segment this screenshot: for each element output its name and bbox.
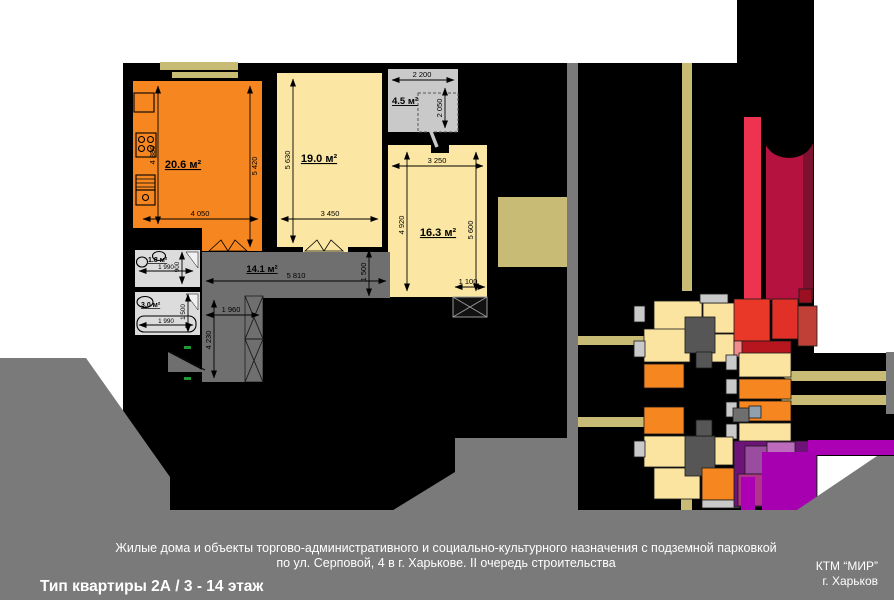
- living-area-label: 19.0 м²: [301, 153, 338, 165]
- bath-area-label: 3.0 м²: [141, 302, 161, 309]
- company-name: КТМ “МИР”: [816, 559, 878, 573]
- dim-loggia-top: 2 200: [413, 70, 432, 79]
- dim-kitchen-bottom: 4 050: [191, 209, 210, 218]
- dim-hall-right: 1 500: [359, 263, 368, 282]
- bedroom-area-label: 16.3 м²: [420, 227, 457, 239]
- wc-area-label: 1.8 м²: [148, 257, 168, 264]
- loggia-area-label: 4.5 м²: [392, 96, 418, 107]
- balcony-strip-top-1: [160, 62, 238, 70]
- bedroom-balcony: [498, 197, 567, 267]
- dim-living-left: 5 630: [283, 151, 292, 170]
- dim-hall-left: 4 230: [204, 331, 213, 350]
- road-prong-2: [781, 395, 894, 405]
- maroon-band: [803, 144, 813, 300]
- dim-bath-bottom: 1 990: [158, 318, 174, 325]
- dim-wc-right: 900: [174, 261, 181, 272]
- dim-bedroom-left: 4 920: [397, 216, 406, 235]
- dim-loggia-right: 2 050: [435, 99, 444, 118]
- apartment-type-title: Тип квартиры 2А / 3 - 14 этаж: [40, 578, 264, 595]
- project-description-line1: Жилые дома и объекты торгово-администрат…: [115, 541, 776, 555]
- kitchen-area-label: 20.6 м²: [165, 159, 202, 171]
- tower-bands: [737, 0, 814, 300]
- road-left-2: [578, 417, 650, 427]
- bedroom-door-gap: [431, 145, 449, 153]
- road-vertical-top: [682, 63, 692, 291]
- dim-bath-right: 1 500: [180, 304, 187, 320]
- green-tick-2: [184, 377, 191, 380]
- floor-plan-drawing: 4 880 5 420 4 050 5 630 3 450 2 200 2 05…: [0, 0, 894, 600]
- company-city: г. Харьков: [822, 574, 878, 588]
- dim-wc-bottom: 1 990: [158, 264, 174, 271]
- dim-hall-top: 5 810: [287, 271, 306, 280]
- green-tick-1: [184, 346, 191, 349]
- dim-living-bottom: 3 450: [321, 209, 340, 218]
- dim-bedroom-bottom: 1 100: [459, 277, 478, 286]
- bedroom-hatch-balcony: [453, 297, 487, 317]
- dim-bedroom-right: 5 600: [466, 221, 475, 240]
- stair-shaft: [245, 296, 263, 382]
- curved-band-end: [764, 116, 814, 158]
- project-description-line2: по ул. Серповой, 4 в г. Харькове. II оче…: [276, 556, 615, 570]
- dark-crimson-band: [766, 136, 803, 300]
- right-edge-strip: [886, 352, 894, 414]
- road-prong-1: [781, 371, 894, 381]
- hall-area-label: 14.1 м²: [246, 264, 277, 275]
- drawing-sheet: 4 880 5 420 4 050 5 630 3 450 2 200 2 05…: [0, 0, 894, 600]
- black-tower-band: [737, 0, 814, 118]
- bright-crimson-band: [744, 117, 761, 300]
- bathroom-room: [135, 292, 200, 335]
- dim-kitchen-left: 4 880: [148, 146, 157, 165]
- dim-hall-inner: 1 960: [222, 305, 241, 314]
- dim-bedroom-top: 3 250: [428, 156, 447, 165]
- dim-kitchen-right: 5 420: [250, 157, 259, 176]
- balcony-strip-top-2: [172, 72, 238, 78]
